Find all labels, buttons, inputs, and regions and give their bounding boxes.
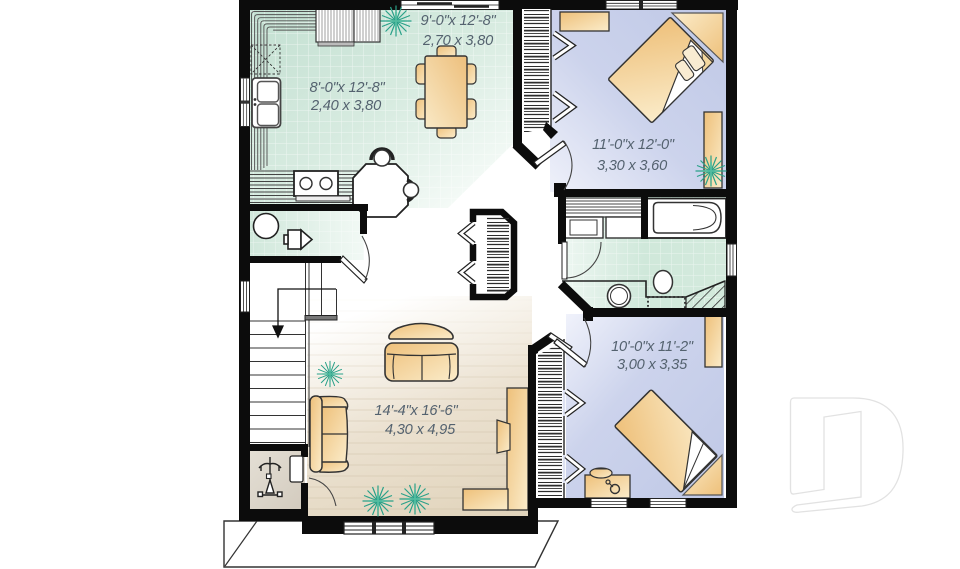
svg-text:3,00 x 3,35: 3,00 x 3,35 [617, 357, 688, 373]
svg-text:9'-0"x 12'-8": 9'-0"x 12'-8" [421, 13, 497, 29]
svg-text:2,70 x 3,80: 2,70 x 3,80 [422, 33, 493, 49]
svg-text:4,30 x 4,95: 4,30 x 4,95 [385, 422, 456, 438]
svg-text:2,40 x 3,80: 2,40 x 3,80 [310, 98, 381, 114]
svg-text:3,30 x 3,60: 3,30 x 3,60 [597, 158, 667, 174]
svg-text:11'-0"x 12'-0": 11'-0"x 12'-0" [592, 137, 675, 153]
svg-text:8'-0"x 12'-8": 8'-0"x 12'-8" [310, 80, 386, 96]
svg-text:14'-4"x 16'-6": 14'-4"x 16'-6" [375, 403, 459, 419]
svg-text:10'-0"x 11'-2": 10'-0"x 11'-2" [611, 339, 694, 355]
